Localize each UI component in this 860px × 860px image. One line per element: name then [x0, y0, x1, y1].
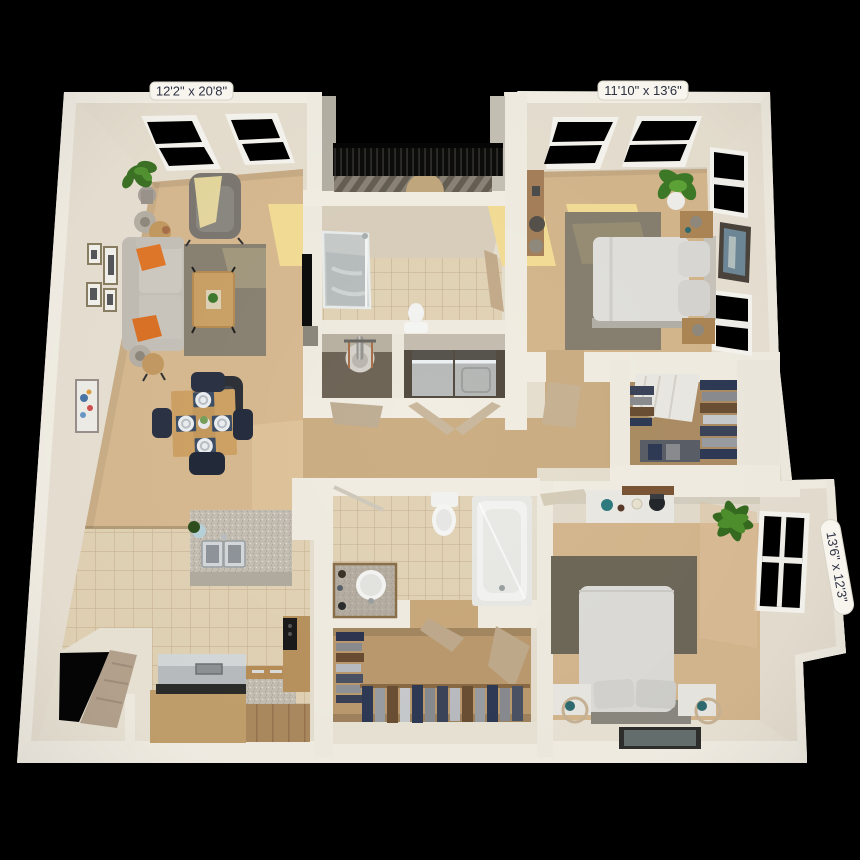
svg-text:11'10" x 13'6": 11'10" x 13'6": [604, 83, 682, 98]
svg-text:12'2" x 20'8": 12'2" x 20'8": [156, 84, 228, 99]
